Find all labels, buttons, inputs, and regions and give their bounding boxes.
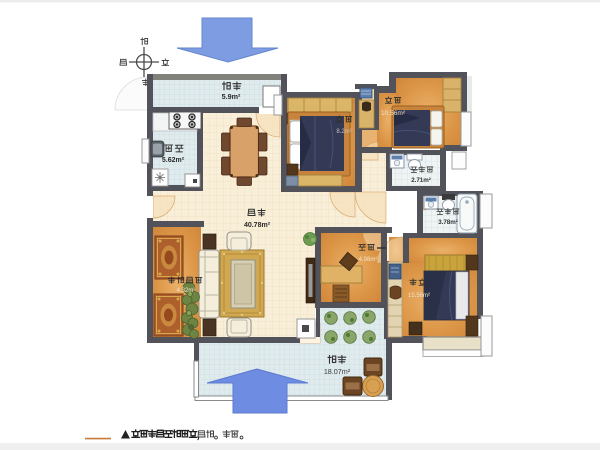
svg-text:18.07m²: 18.07m²: [324, 367, 351, 376]
svg-text:10.56m²: 10.56m²: [381, 110, 406, 117]
svg-text:8.2m²: 8.2m²: [336, 129, 351, 135]
svg-text:15.56m²: 15.56m²: [408, 293, 430, 299]
svg-text:5.62m²: 5.62m²: [162, 157, 185, 164]
svg-text:5.9m²: 5.9m²: [222, 92, 241, 101]
svg-text:3.78m²: 3.78m²: [438, 219, 458, 226]
svg-text:4.32m²: 4.32m²: [177, 288, 196, 294]
svg-text:40.78m²: 40.78m²: [244, 222, 271, 229]
svg-text:2.71m²: 2.71m²: [411, 177, 431, 184]
svg-text:4.98m²: 4.98m²: [359, 257, 378, 263]
